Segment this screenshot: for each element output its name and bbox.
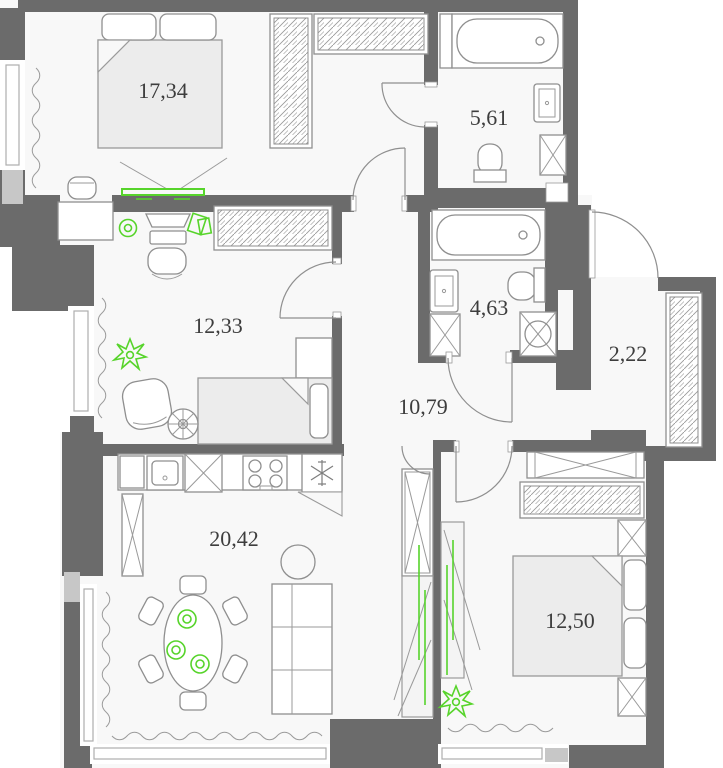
toilet-icon — [508, 268, 545, 302]
wall-niche — [546, 183, 568, 202]
kitchen-sink-icon — [147, 456, 183, 490]
wardrobe-icon — [214, 206, 332, 250]
cabinet-icon — [120, 456, 144, 488]
stove-icon — [243, 456, 287, 490]
area-label-bedroom-main: 17,34 — [138, 78, 188, 103]
cabinet-icon — [185, 454, 222, 492]
washing-machine-icon — [520, 312, 556, 356]
wardrobe-icon — [314, 14, 428, 54]
toilet-icon — [474, 144, 506, 182]
area-label-entry-wardrobe: 2,22 — [609, 341, 648, 366]
shaft-icon — [430, 314, 460, 356]
window-bedroom-third — [438, 744, 568, 764]
area-label-bathroom-guest: 4,63 — [470, 295, 509, 320]
window-living-bottom — [90, 744, 330, 764]
window-room-second — [68, 306, 94, 416]
shaft-icon — [540, 135, 566, 175]
wardrobe-icon — [270, 14, 312, 148]
area-label-bathroom-ensuite: 5,61 — [470, 105, 509, 130]
single-bed-icon — [198, 378, 332, 444]
window-bedroom-main — [0, 60, 25, 204]
chair-icon — [180, 692, 206, 710]
armchair-icon — [120, 376, 174, 431]
shaft-icon — [618, 520, 646, 556]
dresser-icon — [527, 452, 644, 478]
sliding-wardrobe-icon — [402, 469, 433, 576]
bathtub-icon — [432, 210, 545, 260]
area-label-hallway: 10,79 — [398, 394, 448, 419]
area-label-kitchen-living: 20,42 — [209, 526, 259, 551]
shelf-unit-icon — [272, 584, 332, 714]
sink-icon — [430, 270, 458, 312]
bathtub-icon — [452, 14, 563, 68]
floor-plan: 17,34 5,61 12,33 4,63 2,22 10,79 20,42 1… — [0, 0, 723, 768]
chair-icon — [180, 576, 206, 594]
shaft-icon — [618, 678, 646, 716]
wardrobe-icon — [666, 293, 702, 447]
wardrobe-icon — [520, 482, 644, 518]
sink-icon — [534, 84, 560, 122]
shaft-icon — [440, 14, 452, 68]
pillow-icon — [160, 14, 216, 40]
pillow-icon — [624, 618, 646, 668]
pouf-icon — [68, 177, 96, 199]
tall-cabinet-icon — [122, 494, 143, 576]
pillow-icon — [624, 560, 646, 610]
door-entrance — [589, 210, 658, 278]
floor-plan-canvas: 17,34 5,61 12,33 4,63 2,22 10,79 20,42 1… — [0, 0, 723, 768]
room-entry-wardrobe — [666, 293, 702, 447]
round-table-icon — [168, 409, 198, 439]
chair-icon — [148, 248, 186, 274]
area-label-room-second: 12,33 — [193, 313, 243, 338]
nightstand-icon — [296, 338, 332, 378]
area-label-bedroom-third: 12,50 — [545, 608, 595, 633]
pillow-icon — [102, 14, 156, 40]
pillow-icon — [310, 384, 328, 438]
